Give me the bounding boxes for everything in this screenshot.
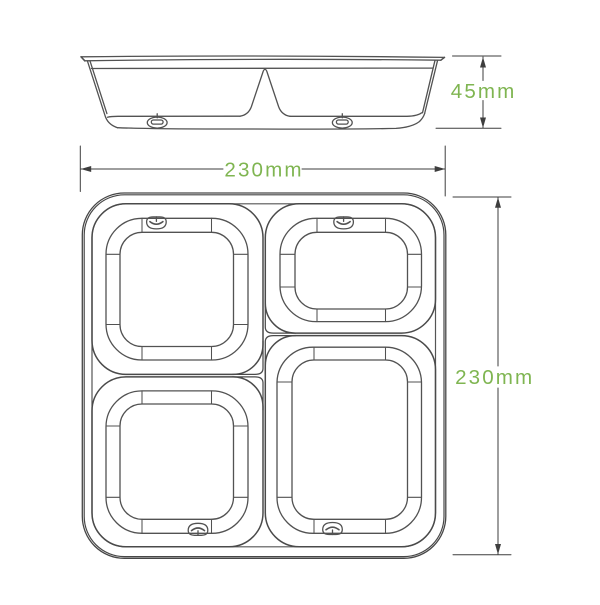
svg-text:230mm: 230mm: [224, 158, 303, 181]
svg-text:230mm: 230mm: [455, 366, 534, 389]
svg-text:45mm: 45mm: [451, 80, 517, 103]
